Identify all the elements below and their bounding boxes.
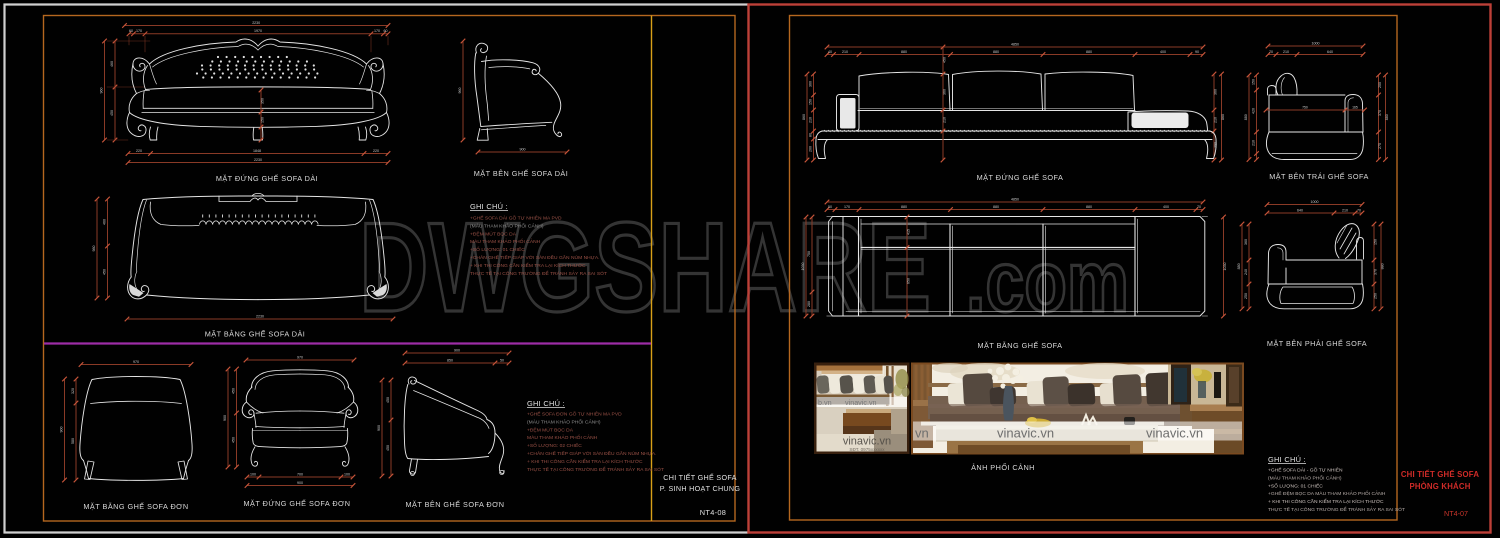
svg-text:420: 420 xyxy=(1252,108,1256,114)
svg-text:860: 860 xyxy=(802,114,806,120)
svg-text:PHÒNG KHÁCH: PHÒNG KHÁCH xyxy=(1409,482,1470,491)
svg-text:50: 50 xyxy=(828,205,832,209)
svg-text:370: 370 xyxy=(1374,269,1378,275)
svg-text:1030: 1030 xyxy=(801,263,805,271)
svg-text:b.vn: b.vn xyxy=(818,398,832,407)
svg-text:+ KHI THI CÔNG CẦN KIỂM TRA LẠ: + KHI THI CÔNG CẦN KIỂM TRA LẠI KÍCH THƯ… xyxy=(470,262,586,269)
svg-text:70: 70 xyxy=(1357,208,1361,212)
svg-text:MÀU THAM KHẢO PHỐI CẢNH: MÀU THAM KHẢO PHỐI CẢNH xyxy=(527,434,598,441)
svg-text:210: 210 xyxy=(1252,140,1256,146)
svg-text:vinavic.vn: vinavic.vn xyxy=(845,398,877,407)
svg-text:vinavic.vn: vinavic.vn xyxy=(843,436,891,448)
svg-text:360: 360 xyxy=(943,89,947,95)
svg-text:1000: 1000 xyxy=(1311,200,1319,204)
svg-text:450: 450 xyxy=(943,57,947,63)
svg-text:90: 90 xyxy=(1195,50,1199,54)
svg-text:750: 750 xyxy=(1302,105,1308,109)
svg-text:900: 900 xyxy=(223,415,227,421)
svg-text:210: 210 xyxy=(1214,117,1218,123)
svg-text:170: 170 xyxy=(374,29,380,33)
svg-text:150: 150 xyxy=(1374,239,1378,245)
svg-text:+SỐ LƯỢNG: 01 CHIẾC: +SỐ LƯỢNG: 01 CHIẾC xyxy=(1268,482,1323,489)
svg-text:900: 900 xyxy=(297,481,303,485)
svg-text:350: 350 xyxy=(261,98,265,104)
svg-text:450: 450 xyxy=(386,397,390,403)
svg-text:250: 250 xyxy=(1244,293,1248,299)
svg-text:220: 220 xyxy=(373,149,379,153)
svg-text:GHI CHÚ :: GHI CHÚ : xyxy=(470,202,508,211)
svg-text:980: 980 xyxy=(92,246,96,252)
svg-text:2230: 2230 xyxy=(256,314,264,318)
svg-text:2230: 2230 xyxy=(252,21,260,25)
svg-text:THỰC TẾ TẠI CÔNG TRƯỜNG ĐỂ TRÁ: THỰC TẾ TẠI CÔNG TRƯỜNG ĐỂ TRÁNH SẢY RA … xyxy=(470,270,607,277)
svg-text:320: 320 xyxy=(71,388,75,394)
svg-text:+SỐ LƯỢNG: 01 CHIẾC: +SỐ LƯỢNG: 01 CHIẾC xyxy=(470,246,525,253)
svg-text:vinavic.vn: vinavic.vn xyxy=(997,426,1054,441)
svg-text:DWGSHARE: DWGSHARE xyxy=(359,196,931,338)
svg-text:100: 100 xyxy=(250,472,256,476)
svg-text:SĐT. 0975xxxxxx: SĐT. 0975xxxxxx xyxy=(849,447,885,452)
svg-text:ẢNH PHỐI CẢNH: ẢNH PHỐI CẢNH xyxy=(971,462,1035,472)
svg-text:THỰC TẾ TẠI CÔNG TRƯỜNG ĐỂ TRÁ: THỰC TẾ TẠI CÔNG TRƯỜNG ĐỂ TRÁNH SẢY RA … xyxy=(1268,506,1405,513)
svg-text:415: 415 xyxy=(907,229,911,235)
svg-text:850: 850 xyxy=(447,358,453,362)
svg-text:CHI TIẾT GHẾ SOFA: CHI TIẾT GHẾ SOFA xyxy=(663,472,737,482)
svg-text:MẶT BẰNG GHẾ SOFA: MẶT BẰNG GHẾ SOFA xyxy=(978,340,1063,350)
svg-text:MẶT BÊN TRÁI GHẾ SOFA: MẶT BÊN TRÁI GHẾ SOFA xyxy=(1269,171,1369,181)
svg-text:MẶT BẰNG GHẾ SOFA ĐƠN: MẶT BẰNG GHẾ SOFA ĐƠN xyxy=(83,501,188,511)
svg-text:MẶT ĐỨNG GHẾ SOFA DÀI: MẶT ĐỨNG GHẾ SOFA DÀI xyxy=(216,173,318,183)
svg-text:450: 450 xyxy=(110,110,114,116)
svg-text:4850: 4850 xyxy=(1011,42,1019,46)
svg-text:+ KHI THI CÔNG CẦN KIỂM TRA LẠ: + KHI THI CÔNG CẦN KIỂM TRA LẠI KÍCH THƯ… xyxy=(527,458,643,465)
svg-text:(MÀU THAM KHẢO PHỐI CẢNH): (MÀU THAM KHẢO PHỐI CẢNH) xyxy=(470,222,544,229)
svg-text:640: 640 xyxy=(1297,208,1303,212)
svg-text:1970: 1970 xyxy=(254,29,262,33)
svg-text:210: 210 xyxy=(943,117,947,123)
svg-text:450: 450 xyxy=(103,269,107,275)
svg-text:60: 60 xyxy=(384,29,388,33)
svg-text:400: 400 xyxy=(1163,205,1169,209)
svg-text:250: 250 xyxy=(1374,293,1378,299)
svg-text:GHI CHÚ :: GHI CHÚ : xyxy=(1268,455,1306,464)
svg-text:(MÀU THAM KHẢO PHỐI CẢNH): (MÀU THAM KHẢO PHỐI CẢNH) xyxy=(1268,474,1342,481)
svg-text:200: 200 xyxy=(1378,82,1382,88)
svg-text:450: 450 xyxy=(232,388,236,394)
svg-text:MÀU THAM KHẢO PHỐI CẢNH: MÀU THAM KHẢO PHỐI CẢNH xyxy=(470,238,541,245)
svg-text:650: 650 xyxy=(907,278,911,284)
svg-text:150: 150 xyxy=(809,99,813,105)
svg-text:150: 150 xyxy=(261,117,265,123)
svg-text:200: 200 xyxy=(809,146,813,152)
svg-text:50: 50 xyxy=(500,358,504,362)
svg-text:70: 70 xyxy=(1269,50,1273,54)
svg-text:360: 360 xyxy=(1244,239,1248,245)
svg-text:360: 360 xyxy=(809,81,813,87)
svg-text:170: 170 xyxy=(136,29,142,33)
svg-text:MẶT BÊN GHẾ SOFA DÀI: MẶT BÊN GHẾ SOFA DÀI xyxy=(474,168,568,178)
svg-text:210: 210 xyxy=(1283,50,1289,54)
svg-text:880: 880 xyxy=(993,205,999,209)
svg-text:+ KHI THI CÔNG CẦN KIỂM TRA LẠ: + KHI THI CÔNG CẦN KIỂM TRA LẠI KÍCH THƯ… xyxy=(1268,498,1384,505)
svg-text:MẶT BÊN GHẾ SOFA ĐƠN: MẶT BÊN GHẾ SOFA ĐƠN xyxy=(405,499,504,509)
svg-text:80: 80 xyxy=(809,133,813,137)
svg-text:880: 880 xyxy=(1086,50,1092,54)
svg-text:370: 370 xyxy=(1378,110,1382,116)
svg-text:360: 360 xyxy=(1214,89,1218,95)
svg-text:THỰC TẾ TẠI CÔNG TRƯỜNG ĐỂ TRÁ: THỰC TẾ TẠI CÔNG TRƯỜNG ĐỂ TRÁNH SẢY RA … xyxy=(527,466,664,473)
svg-text:vinavic.vn: vinavic.vn xyxy=(1146,426,1203,441)
svg-text:280: 280 xyxy=(807,301,811,307)
svg-text:170: 170 xyxy=(844,205,850,209)
svg-text:40: 40 xyxy=(828,50,832,54)
svg-text:MẶT BÊN PHẢI GHẾ SOFA: MẶT BÊN PHẢI GHẾ SOFA xyxy=(1267,338,1367,348)
svg-text:400: 400 xyxy=(1160,50,1166,54)
svg-text:880: 880 xyxy=(1381,263,1385,269)
svg-text:1030: 1030 xyxy=(1223,263,1227,271)
svg-text:2230: 2230 xyxy=(254,158,262,162)
svg-text:880: 880 xyxy=(1385,114,1389,120)
svg-text:150: 150 xyxy=(1252,79,1256,85)
svg-text:750: 750 xyxy=(807,251,811,257)
svg-text:220: 220 xyxy=(136,149,142,153)
svg-text:900: 900 xyxy=(377,425,381,431)
svg-text:240: 240 xyxy=(1244,269,1248,275)
svg-text:880: 880 xyxy=(993,50,999,54)
svg-text:70: 70 xyxy=(1197,205,1201,209)
svg-text:640: 640 xyxy=(1327,50,1333,54)
svg-text:460: 460 xyxy=(103,219,107,225)
svg-text:210: 210 xyxy=(1342,208,1348,212)
svg-text:900: 900 xyxy=(520,147,526,151)
svg-text:880: 880 xyxy=(901,50,907,54)
svg-text:880: 880 xyxy=(1237,263,1241,269)
svg-text:GHI CHÚ :: GHI CHÚ : xyxy=(527,399,565,408)
svg-text:900: 900 xyxy=(454,348,460,352)
svg-text:NT4-08: NT4-08 xyxy=(700,508,726,517)
svg-text:700: 700 xyxy=(297,472,303,476)
svg-text:880: 880 xyxy=(1244,114,1248,120)
svg-text:165: 165 xyxy=(1352,105,1358,109)
svg-text:+SỐ LƯỢNG: 02 CHIẾC: +SỐ LƯỢNG: 02 CHIẾC xyxy=(527,442,582,449)
svg-text:450: 450 xyxy=(232,437,236,443)
svg-text:460: 460 xyxy=(110,61,114,67)
svg-text:960: 960 xyxy=(100,88,104,94)
svg-text:900: 900 xyxy=(60,427,64,433)
svg-text:4850: 4850 xyxy=(1011,197,1019,201)
svg-text:210: 210 xyxy=(809,117,813,123)
svg-text:100: 100 xyxy=(344,472,350,476)
svg-text:860: 860 xyxy=(1221,114,1225,120)
svg-text:(MÀU THAM KHẢO PHỐI CẢNH): (MÀU THAM KHẢO PHỐI CẢNH) xyxy=(527,418,601,425)
svg-text:MẶT BẰNG GHẾ SOFA DÀI: MẶT BẰNG GHẾ SOFA DÀI xyxy=(205,329,306,339)
svg-text:MẶT ĐỨNG GHẾ SOFA ĐƠN: MẶT ĐỨNG GHẾ SOFA ĐƠN xyxy=(244,498,351,508)
svg-text:CHI TIẾT GHẾ SOFA: CHI TIẾT GHẾ SOFA xyxy=(1401,469,1480,479)
svg-text:P. SINH HOẠT CHUNG: P. SINH HOẠT CHUNG xyxy=(660,484,741,493)
svg-text:580: 580 xyxy=(71,438,75,444)
svg-text:970: 970 xyxy=(297,355,303,359)
svg-text:60: 60 xyxy=(129,29,133,33)
svg-text:275: 275 xyxy=(1378,143,1382,149)
svg-text:450: 450 xyxy=(386,445,390,451)
svg-text:1000: 1000 xyxy=(1312,41,1320,45)
svg-text:880: 880 xyxy=(901,205,907,209)
svg-text:970: 970 xyxy=(133,360,139,364)
svg-text:vn: vn xyxy=(915,426,929,441)
svg-text:880: 880 xyxy=(1086,205,1092,209)
svg-text:210: 210 xyxy=(842,50,848,54)
svg-text:MẶT ĐỨNG GHẾ SOFA: MẶT ĐỨNG GHẾ SOFA xyxy=(977,172,1064,182)
svg-text:1848: 1848 xyxy=(253,149,261,153)
svg-text:NT4-07: NT4-07 xyxy=(1444,509,1468,518)
svg-text:960: 960 xyxy=(458,88,462,94)
